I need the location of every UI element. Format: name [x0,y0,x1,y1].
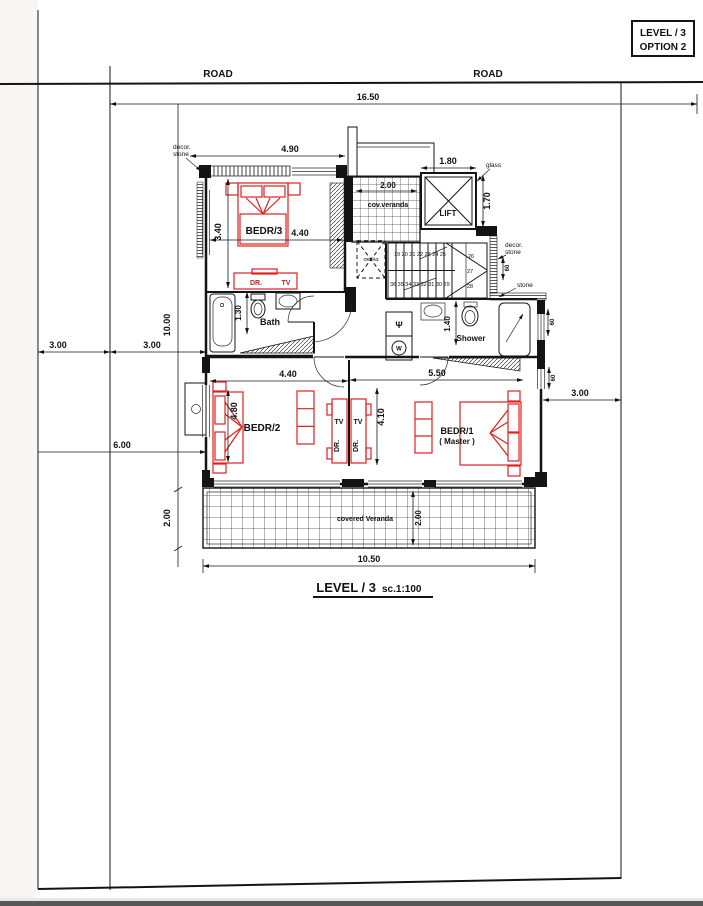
svg-text:1.40: 1.40 [443,316,452,332]
svg-text:4.10: 4.10 [376,408,386,426]
dim-site-width: 16.50 [110,92,697,114]
stairs-row-bottom: 36 35 34 33 32 31 30 29 [390,282,450,288]
svg-text:glass: glass [486,162,502,169]
svg-text:1.80: 1.80 [439,156,457,166]
dr-right-label: DR. [353,440,360,452]
dim-60-a: 60 [503,257,511,280]
svg-text:2.00: 2.00 [380,181,396,190]
decor-stone-note-topright: decor. stone [498,242,523,259]
bedr2-label: BEDR/2 [244,423,281,434]
svg-text:1.30: 1.30 [234,305,243,321]
road-label-right: ROAD [473,69,502,80]
dim-60-c: 60 [549,367,557,389]
dim-bedr1-width: 5.50 [350,368,523,380]
svg-text:60: 60 [551,374,557,381]
title-main: LEVEL / 3 [316,580,376,595]
svg-text:5.50: 5.50 [428,368,446,378]
washer-symbol: W [396,347,402,353]
svg-text:stone: stone [517,282,533,289]
dim-bath: 1.30 [234,292,247,334]
svg-text:3.40: 3.40 [213,223,223,241]
shower-room [421,300,546,360]
drawing-title: LEVEL / 3 sc.1:100 [313,580,433,597]
dim-veranda-left: 2.00 [162,509,172,527]
bedr3-dr-label: DR. [250,280,262,287]
svg-text:1.70: 1.70 [482,192,492,210]
svg-text:10.50: 10.50 [358,554,381,564]
bath-label: Bath [260,317,280,327]
stairs-n26: 26 [468,254,474,260]
bedr1-label: BEDR/1 [440,426,473,436]
lift-label: LIFT [440,209,457,218]
dim-lift-width: 1.80 [421,156,476,168]
svg-text:4.80: 4.80 [229,402,239,420]
bedr3-label: BEDR/3 [246,226,283,237]
bedr3-tv-label: TV [282,280,291,287]
decor-stone-note-topleft: decor. stone [173,144,201,171]
svg-text:60: 60 [505,264,511,271]
dim-bedr2-width: 4.40 [210,369,348,381]
left-dimension-chain: 3.00 3.00 10.00 6.00 2.00 [38,104,206,567]
dim-60-b: 60 [548,309,556,336]
level-box-line2: OPTION 2 [640,42,687,53]
dim-rear: 6.00 [113,440,131,450]
dim-left-b: 3.00 [143,340,161,350]
svg-text:decor.: decor. [173,144,191,151]
dim-right-setback: 3.00 [543,388,621,400]
stairs-n28: 28 [467,284,473,290]
dim-lift-depth: 1.70 [482,175,492,227]
floor-plan-drawing: ROAD ROAD LEVEL / 3 OPTION 2 16.50 [0,0,703,906]
svg-text:16.50: 16.50 [357,92,380,102]
level-option-box: LEVEL / 3 OPTION 2 [632,21,694,56]
svg-text:4.40: 4.40 [291,228,309,238]
cov-veranda-label: cov.veranda [368,202,408,209]
level-box-line1: LEVEL / 3 [640,28,686,39]
dim-veranda-width: 10.50 [203,554,535,573]
dim-left-a: 3.00 [49,340,67,350]
shower-label: Shower [457,334,486,343]
stone-wall-right [490,229,546,300]
svg-text:decor.: decor. [505,242,523,249]
svg-text:4.40: 4.40 [279,369,297,379]
bedr1-wardrobe [415,402,432,453]
dr-left-label: DR. [334,440,341,452]
tv-right-label: TV [354,419,363,426]
svg-text:3.00: 3.00 [571,388,589,398]
bedr2-wardrobe [297,391,314,444]
svg-text:4.90: 4.90 [281,144,299,154]
stairs-n27: 27 [467,269,473,275]
bedr3-walls [197,165,347,357]
svg-text:60: 60 [550,318,556,325]
roof-structure [348,127,434,176]
svg-text:stone: stone [505,249,521,256]
bath-sink [276,293,300,309]
tv-left-label: TV [335,419,344,426]
dim-bedr3-top: 4.90 [190,144,345,156]
road-label-left: ROAD [203,69,232,80]
dim-bedr2-bed: 4.80 [228,390,239,462]
bathtub [210,294,235,352]
bath-toilet [251,294,265,318]
svg-text:stone: stone [173,151,189,158]
stairs-row-top: 19 20 21 22 23 24 25 [394,252,446,258]
floorplan-sheet: ROAD ROAD LEVEL / 3 OPTION 2 16.50 [0,0,703,906]
dim-depth: 10.00 [162,314,172,337]
title-scale: sc.1:100 [382,584,422,595]
glass-note: glass [477,162,502,181]
closet-psi-symbol: Ψ [395,320,402,330]
bedr1-sublabel: ( Master ) [439,437,475,446]
skala-label: σκάλα [363,256,379,263]
svg-text:2.00: 2.00 [414,510,423,526]
covered-veranda-label: covered Veranda [337,516,393,523]
dim-bedr1-depth: 4.10 [376,388,386,465]
